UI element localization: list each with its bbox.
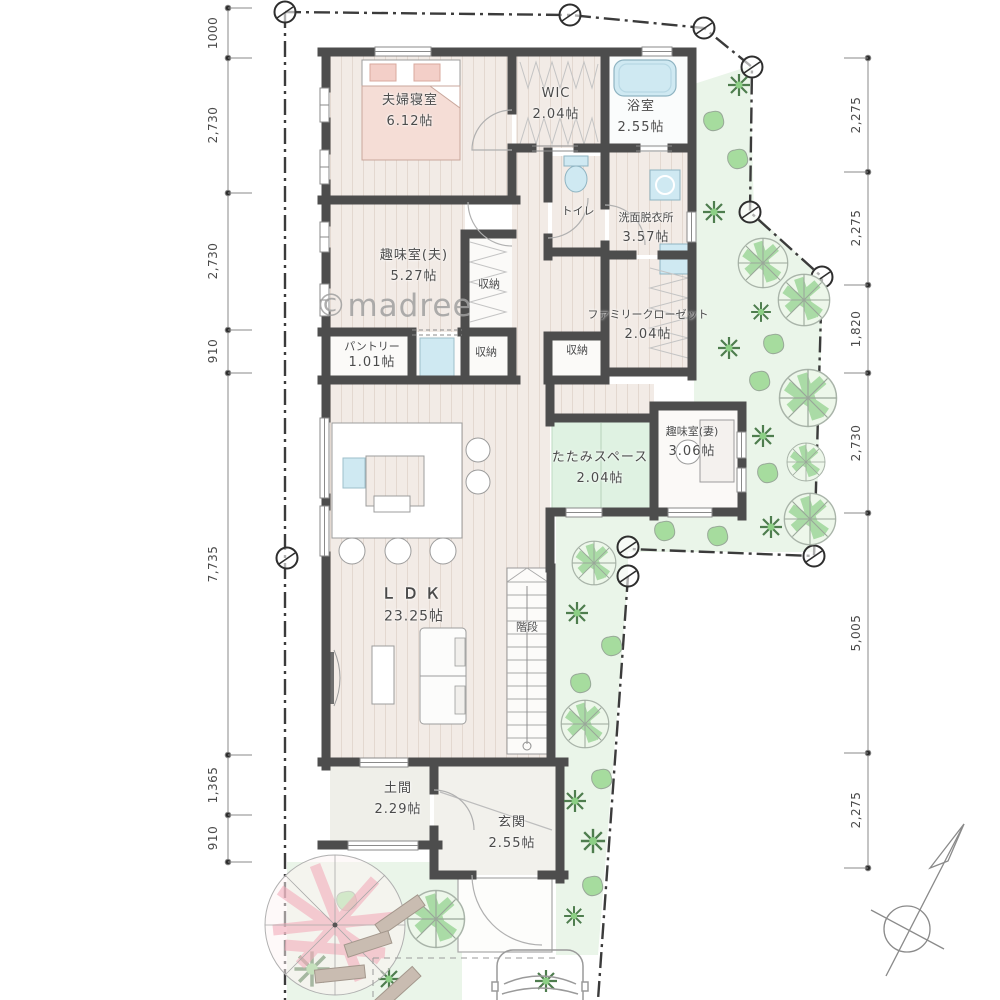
dim-left-4: 910 xyxy=(206,339,220,363)
room-name: 浴室 xyxy=(618,100,665,115)
room-size: 3.57帖 xyxy=(619,231,674,246)
dim-left-3: 2,730 xyxy=(206,243,220,280)
room-label-wic: WIC 2.04帖 xyxy=(533,87,580,123)
room-name: 趣味室(夫) xyxy=(380,249,448,264)
watermark: ©madree xyxy=(315,288,472,324)
room-size: 2.04帖 xyxy=(588,328,709,343)
room-name: ファミリークローゼット xyxy=(588,309,709,322)
room-label-bath: 浴室 2.55帖 xyxy=(618,100,665,136)
room-size: 5.27帖 xyxy=(380,270,448,285)
boundary-marker xyxy=(804,546,825,567)
boundary-marker xyxy=(740,202,761,223)
room-label-washroom: 洗面脱衣所 3.57帖 xyxy=(619,212,674,246)
room-size: 2.29帖 xyxy=(375,803,422,818)
room-name: 収納 xyxy=(478,279,500,292)
room-name: 収納 xyxy=(475,347,497,360)
room-label-family-closet: ファミリークローゼット 2.04帖 xyxy=(588,309,709,343)
dim-left-2: 2,730 xyxy=(206,107,220,144)
dim-right-4: 2,730 xyxy=(849,425,863,462)
north-arrow xyxy=(871,824,964,976)
dim-right-6: 2,275 xyxy=(849,792,863,829)
dim-left-1: 1000 xyxy=(206,17,220,50)
room-size: 2.55帖 xyxy=(489,837,536,852)
dim-left-7: 910 xyxy=(206,826,220,850)
room-name: 趣味室(妻) xyxy=(666,426,719,439)
boundary-marker xyxy=(618,566,639,587)
room-name: 洗面脱衣所 xyxy=(619,212,674,225)
room-label-closet-hobby: 収納 xyxy=(478,279,500,292)
boundary-marker xyxy=(618,537,639,558)
room-size: 3.06帖 xyxy=(666,445,719,460)
room-size: 23.25帖 xyxy=(381,609,447,625)
room-label-stairs: 階段 xyxy=(516,622,538,635)
room-size: 6.12帖 xyxy=(382,115,438,130)
boundary-marker xyxy=(560,5,581,26)
dim-left-5: 7,735 xyxy=(206,546,220,583)
room-size: 2.04帖 xyxy=(533,108,580,123)
room-size: 1.01帖 xyxy=(344,356,400,371)
stairs xyxy=(507,568,548,754)
dim-right-5: 5,005 xyxy=(849,615,863,652)
room-name: 玄関 xyxy=(489,816,536,831)
room-label-genkan: 玄関 2.55帖 xyxy=(489,816,536,852)
room-label-hobby-husband: 趣味室(夫) 5.27帖 xyxy=(380,249,448,285)
bathtub xyxy=(614,60,676,96)
room-label-doma: 土間 2.29帖 xyxy=(375,782,422,818)
room-name: WIC xyxy=(533,87,580,102)
boundary-marker xyxy=(742,57,763,78)
room-size: 2.04帖 xyxy=(552,472,648,487)
room-label-toilet: トイレ xyxy=(562,206,595,219)
room-label-ldk: ＬＤＫ 23.25帖 xyxy=(381,585,447,624)
room-name: 夫婦寝室 xyxy=(382,94,438,109)
room-name: 階段 xyxy=(516,622,538,635)
floor-plan-page: 夫婦寝室 6.12帖 WIC 2.04帖 浴室 2.55帖 トイレ 洗面脱衣所 … xyxy=(0,0,1000,1000)
room-label-bedroom: 夫婦寝室 6.12帖 xyxy=(382,94,438,130)
toilet-bowl xyxy=(564,156,588,192)
room-label-closet-hall: 収納 xyxy=(566,345,588,358)
room-name: トイレ xyxy=(562,206,595,219)
boundary-marker xyxy=(694,18,715,39)
room-name: たたみスペース xyxy=(552,451,648,466)
washing-machine xyxy=(650,170,680,200)
room-label-tatami: たたみスペース 2.04帖 xyxy=(552,451,648,487)
dim-right-1: 2,275 xyxy=(849,97,863,134)
room-name: 収納 xyxy=(566,345,588,358)
refrigerator xyxy=(420,338,454,376)
room-label-hobby-wife: 趣味室(妻) 3.06帖 xyxy=(666,426,719,460)
room-name: 土間 xyxy=(375,782,422,797)
dim-right-3: 1,820 xyxy=(849,311,863,348)
room-name: パントリー xyxy=(344,341,400,354)
boundary-marker xyxy=(277,548,298,569)
room-size: 2.55帖 xyxy=(618,121,665,136)
dim-left-6: 1,365 xyxy=(206,767,220,804)
dim-right-2: 2,275 xyxy=(849,210,863,247)
room-name: ＬＤＫ xyxy=(381,585,447,602)
room-label-closet-south: 収納 xyxy=(475,347,497,360)
room-label-pantry: パントリー 1.01帖 xyxy=(344,341,400,371)
boundary-marker xyxy=(275,2,296,23)
